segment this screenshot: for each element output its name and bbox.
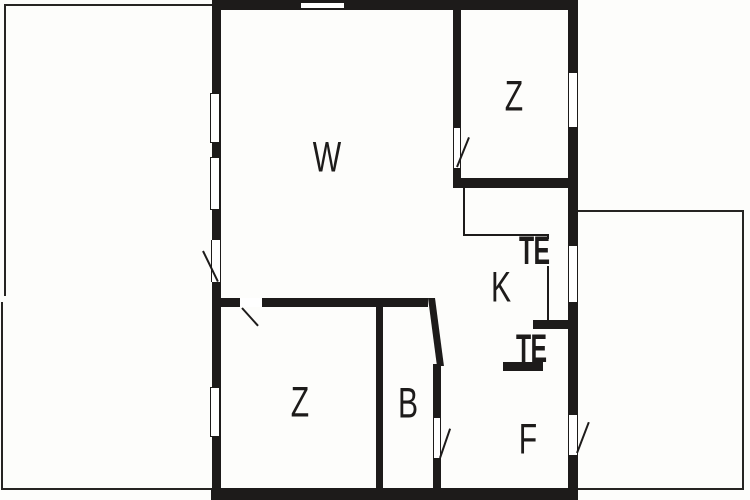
terrace-right-bottom-edge bbox=[578, 488, 744, 490]
window-right-upper bbox=[568, 72, 578, 128]
interior-wall-b-vertical-lower bbox=[433, 457, 441, 488]
te-label-lower: TE bbox=[516, 334, 546, 364]
window-right-middle bbox=[568, 245, 578, 303]
room-label-bedroom-top: Z bbox=[505, 76, 523, 119]
window-left-upper-1 bbox=[210, 93, 220, 143]
door-leaf-right-terrace bbox=[576, 422, 590, 454]
terrace-left-lower-bottom-edge bbox=[1, 488, 213, 490]
door-opening-lower-bedroom bbox=[240, 298, 262, 307]
window-top-wall bbox=[300, 2, 345, 9]
window-left-lower bbox=[210, 387, 220, 437]
terrace-left-upper-left-edge bbox=[4, 4, 6, 296]
window-left-upper-2 bbox=[210, 157, 220, 210]
interior-wall-w-z-stub bbox=[453, 168, 461, 178]
exterior-wall-top bbox=[212, 0, 578, 10]
exterior-wall-bottom bbox=[211, 488, 578, 500]
terrace-left-upper-top-edge bbox=[4, 4, 213, 6]
terrace-left-lower-left-edge bbox=[1, 302, 3, 490]
terrace-right-right-edge bbox=[742, 210, 744, 490]
door-leaf-lower-bedroom bbox=[241, 307, 259, 326]
room-label-bedroom-bottom: Z bbox=[291, 382, 309, 425]
room-label-living: W bbox=[313, 137, 341, 180]
te-label-upper: TE bbox=[519, 236, 549, 266]
interior-wall-lower-right-segment bbox=[262, 298, 428, 307]
room-label-bath: B bbox=[398, 383, 418, 426]
interior-wall-b-slant bbox=[428, 298, 444, 366]
kitchen-counter-line-left bbox=[463, 188, 465, 236]
interior-wall-b-vertical-upper bbox=[433, 364, 441, 418]
interior-wall-w-z-vertical bbox=[453, 10, 461, 128]
room-label-hall: F bbox=[519, 419, 537, 462]
floor-plan: W Z Z K B F TE TE bbox=[0, 0, 750, 500]
interior-wall-z-bottom bbox=[453, 178, 578, 188]
interior-wall-lower-left-segment bbox=[221, 298, 240, 307]
kitchen-counter-line-right-lower bbox=[547, 266, 549, 320]
room-label-kitchen: K bbox=[491, 267, 511, 310]
terrace-right-top-edge bbox=[578, 210, 744, 212]
interior-wall-z-b-divider bbox=[376, 305, 383, 488]
